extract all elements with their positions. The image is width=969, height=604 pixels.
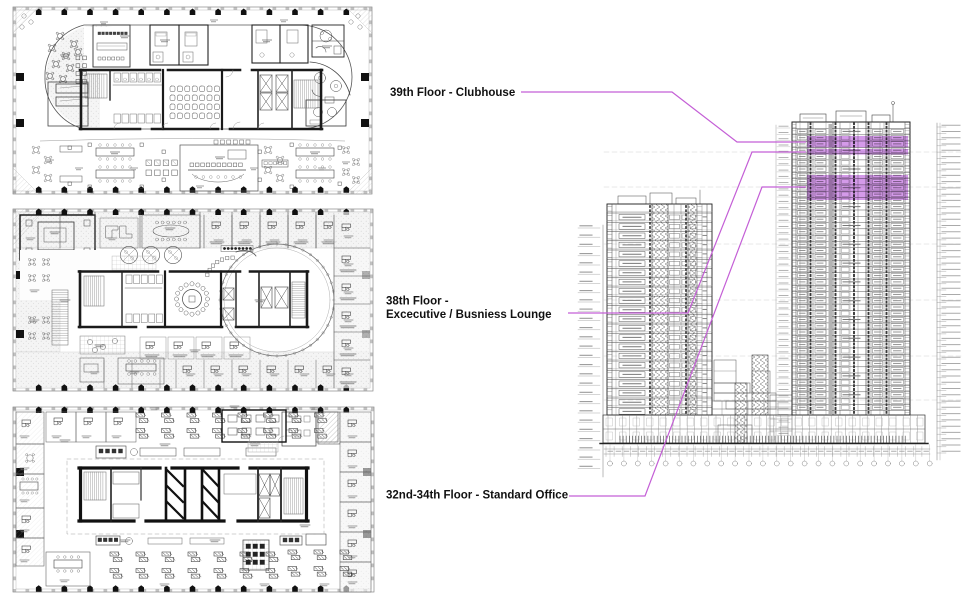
- svg-text:39th Floor - Clubhouse: 39th Floor - Clubhouse: [390, 87, 515, 99]
- svg-text:32nd-34th Floor - Standard Off: 32nd-34th Floor - Standard Office: [386, 490, 568, 502]
- svg-text:Excecutive / Busniess Lounge: Excecutive / Busniess Lounge: [386, 309, 552, 321]
- svg-text:38th Floor -: 38th Floor -: [386, 296, 449, 308]
